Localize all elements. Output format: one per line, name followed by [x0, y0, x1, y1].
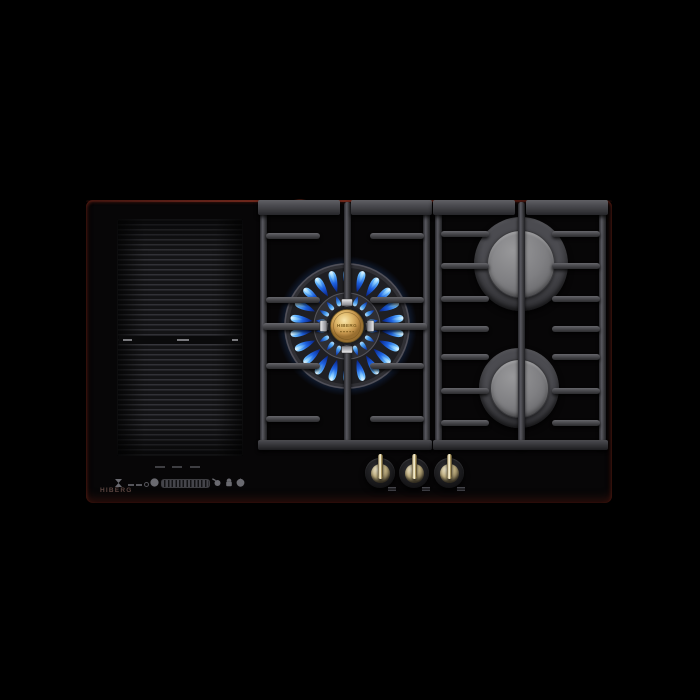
grate-bar	[258, 440, 432, 450]
grate-finger	[441, 354, 489, 360]
grate-bar	[599, 202, 606, 448]
knob-handle	[447, 454, 452, 479]
grate-finger	[370, 416, 424, 422]
grate-bar	[433, 440, 608, 450]
grate-finger	[552, 296, 600, 302]
grate-bar	[526, 200, 608, 215]
gas-knob-3[interactable]	[434, 458, 464, 488]
divider-tick	[177, 339, 189, 341]
brand-logo: HIBERG	[100, 487, 132, 494]
grate-finger	[552, 388, 600, 394]
cap-brand-text: HIBERG	[337, 323, 357, 328]
grate-finger	[552, 354, 600, 360]
grate-finger	[266, 416, 320, 422]
grate-right	[433, 200, 608, 450]
knob-scale-marks	[388, 487, 396, 491]
knob-scale-marks	[457, 487, 465, 491]
product-photo: HIBERG	[0, 0, 700, 700]
grate-middle: HIBERG	[258, 200, 432, 450]
pan-detection-icon[interactable]	[212, 478, 222, 487]
power-icon[interactable]	[236, 478, 245, 487]
grate-finger	[441, 263, 489, 269]
flex-zone-divider	[119, 336, 241, 344]
display-dashes	[136, 484, 142, 486]
induction-flex-zone	[117, 219, 243, 456]
power-slider[interactable]	[161, 479, 210, 488]
grate-finger	[552, 326, 600, 332]
grate-bar	[435, 202, 442, 448]
position-tick	[172, 466, 182, 468]
lock-icon[interactable]	[225, 478, 233, 487]
grate-finger	[552, 263, 600, 269]
grate-finger	[370, 233, 424, 239]
grate-bar	[518, 202, 525, 448]
grate-finger	[552, 420, 600, 426]
gas-knob-1[interactable]	[365, 458, 395, 488]
display-dashes	[128, 484, 134, 486]
burner-cap-gold: HIBERG	[307, 286, 387, 366]
grate-finger	[441, 231, 489, 237]
grate-finger	[441, 326, 489, 332]
grate-finger	[441, 388, 489, 394]
gas-knob-2[interactable]	[399, 458, 429, 488]
grate-bar	[433, 200, 515, 215]
grate-finger	[266, 233, 320, 239]
grate-bar	[351, 200, 432, 215]
grate-bar	[258, 200, 340, 215]
divider-tick	[123, 339, 132, 341]
knob-handle	[378, 454, 383, 479]
knob-handle	[412, 454, 417, 479]
knob-scale-marks	[422, 487, 430, 491]
position-tick	[190, 466, 200, 468]
cooktop: HIBERG	[86, 200, 612, 503]
grate-finger	[552, 231, 600, 237]
keep-warm-icon[interactable]	[150, 478, 159, 487]
divider-tick	[232, 339, 238, 341]
grate-finger	[441, 420, 489, 426]
position-tick	[155, 466, 165, 468]
degree-dot	[144, 482, 149, 487]
grate-finger	[441, 296, 489, 302]
